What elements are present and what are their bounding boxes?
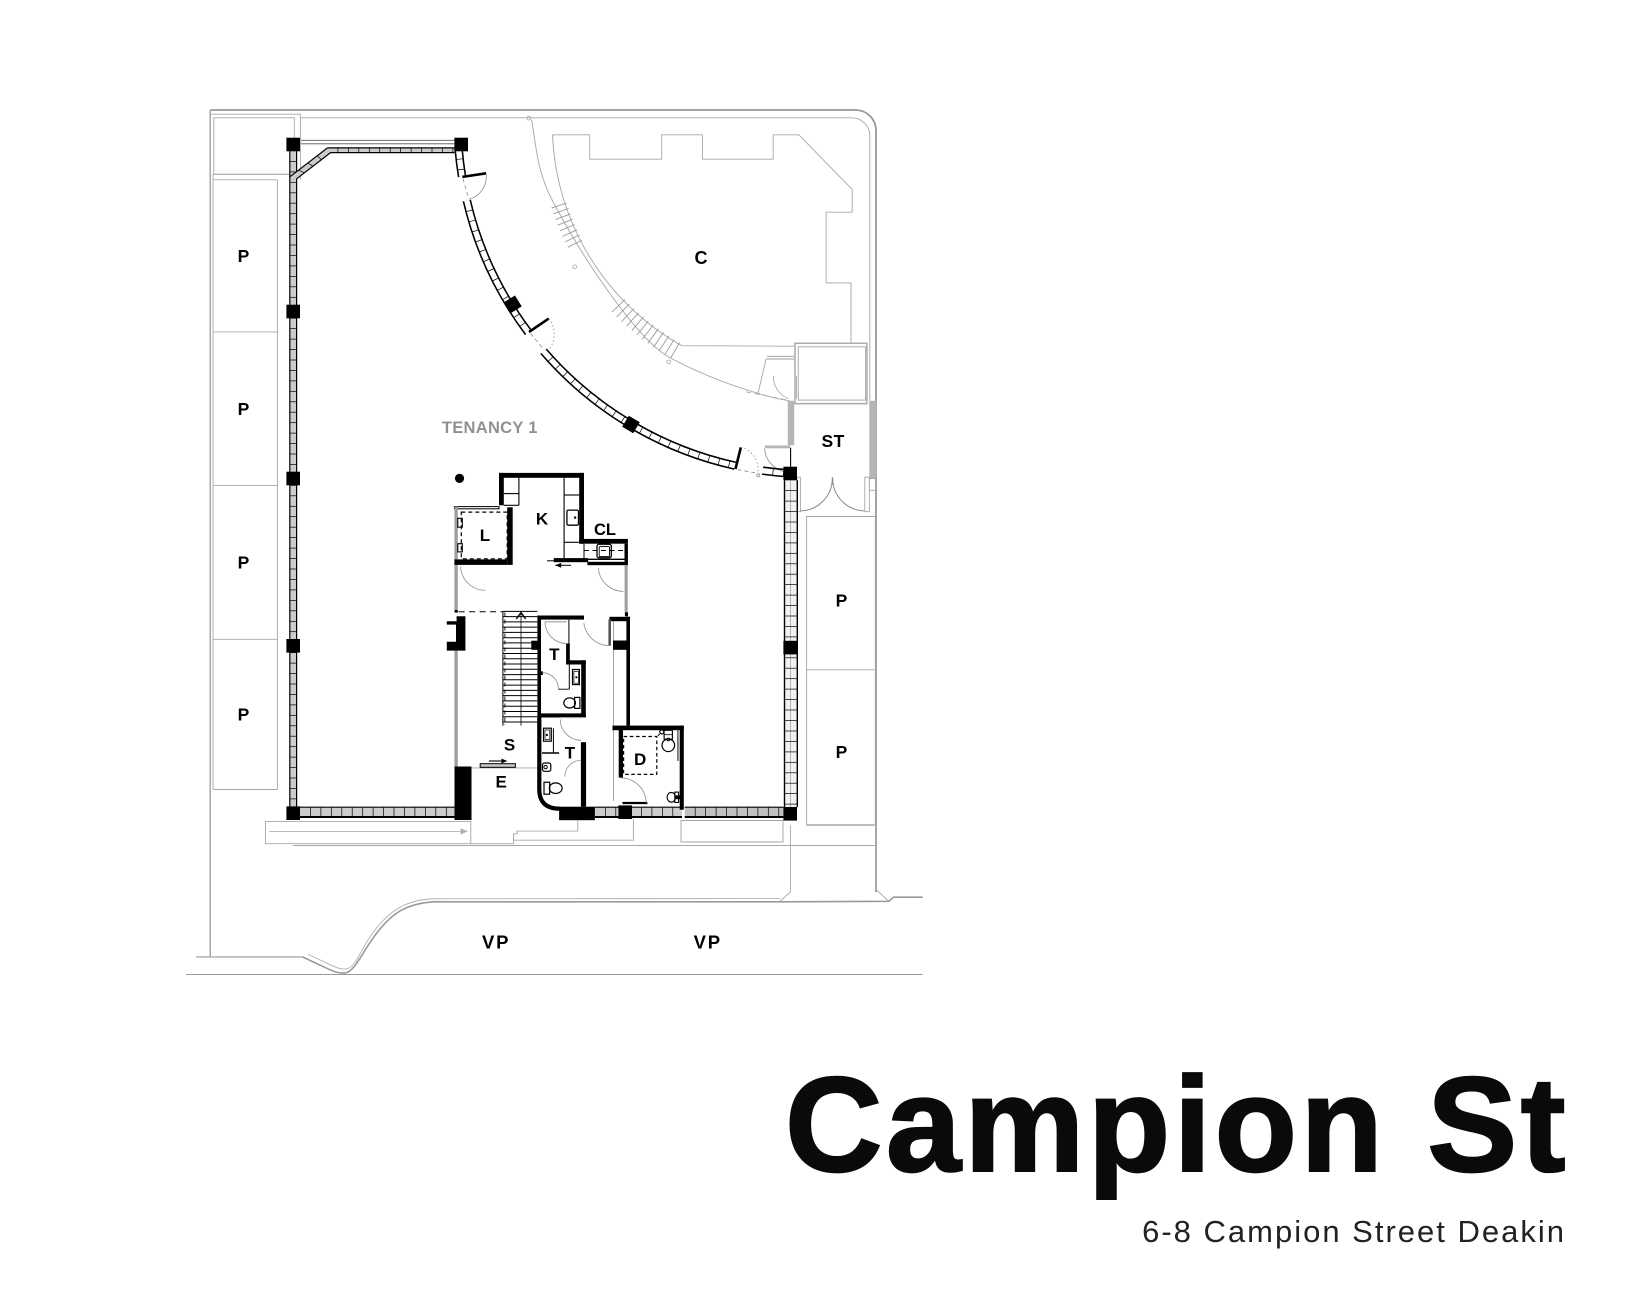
svg-text:P: P [238,705,250,725]
svg-text:K: K [536,510,549,529]
svg-text:P: P [238,399,250,419]
svg-text:C: C [695,248,708,268]
svg-text:6-8 Campion Street Deakin: 6-8 Campion Street Deakin [1142,1214,1566,1249]
svg-text:P: P [238,246,250,266]
svg-text:CL: CL [594,521,616,539]
svg-text:T: T [565,743,576,762]
svg-text:D: D [634,750,646,769]
svg-text:ST: ST [822,431,845,451]
svg-text:VP: VP [694,932,722,953]
svg-text:P: P [836,742,848,762]
svg-text:P: P [238,553,250,573]
svg-text:P: P [836,591,848,611]
svg-text:T: T [549,645,560,664]
svg-text:TENANCY 1: TENANCY 1 [442,419,538,437]
svg-text:Campion St: Campion St [785,1049,1569,1200]
svg-text:E: E [496,773,507,792]
svg-text:S: S [504,736,515,755]
svg-text:VP: VP [482,932,510,953]
svg-text:L: L [480,526,490,545]
